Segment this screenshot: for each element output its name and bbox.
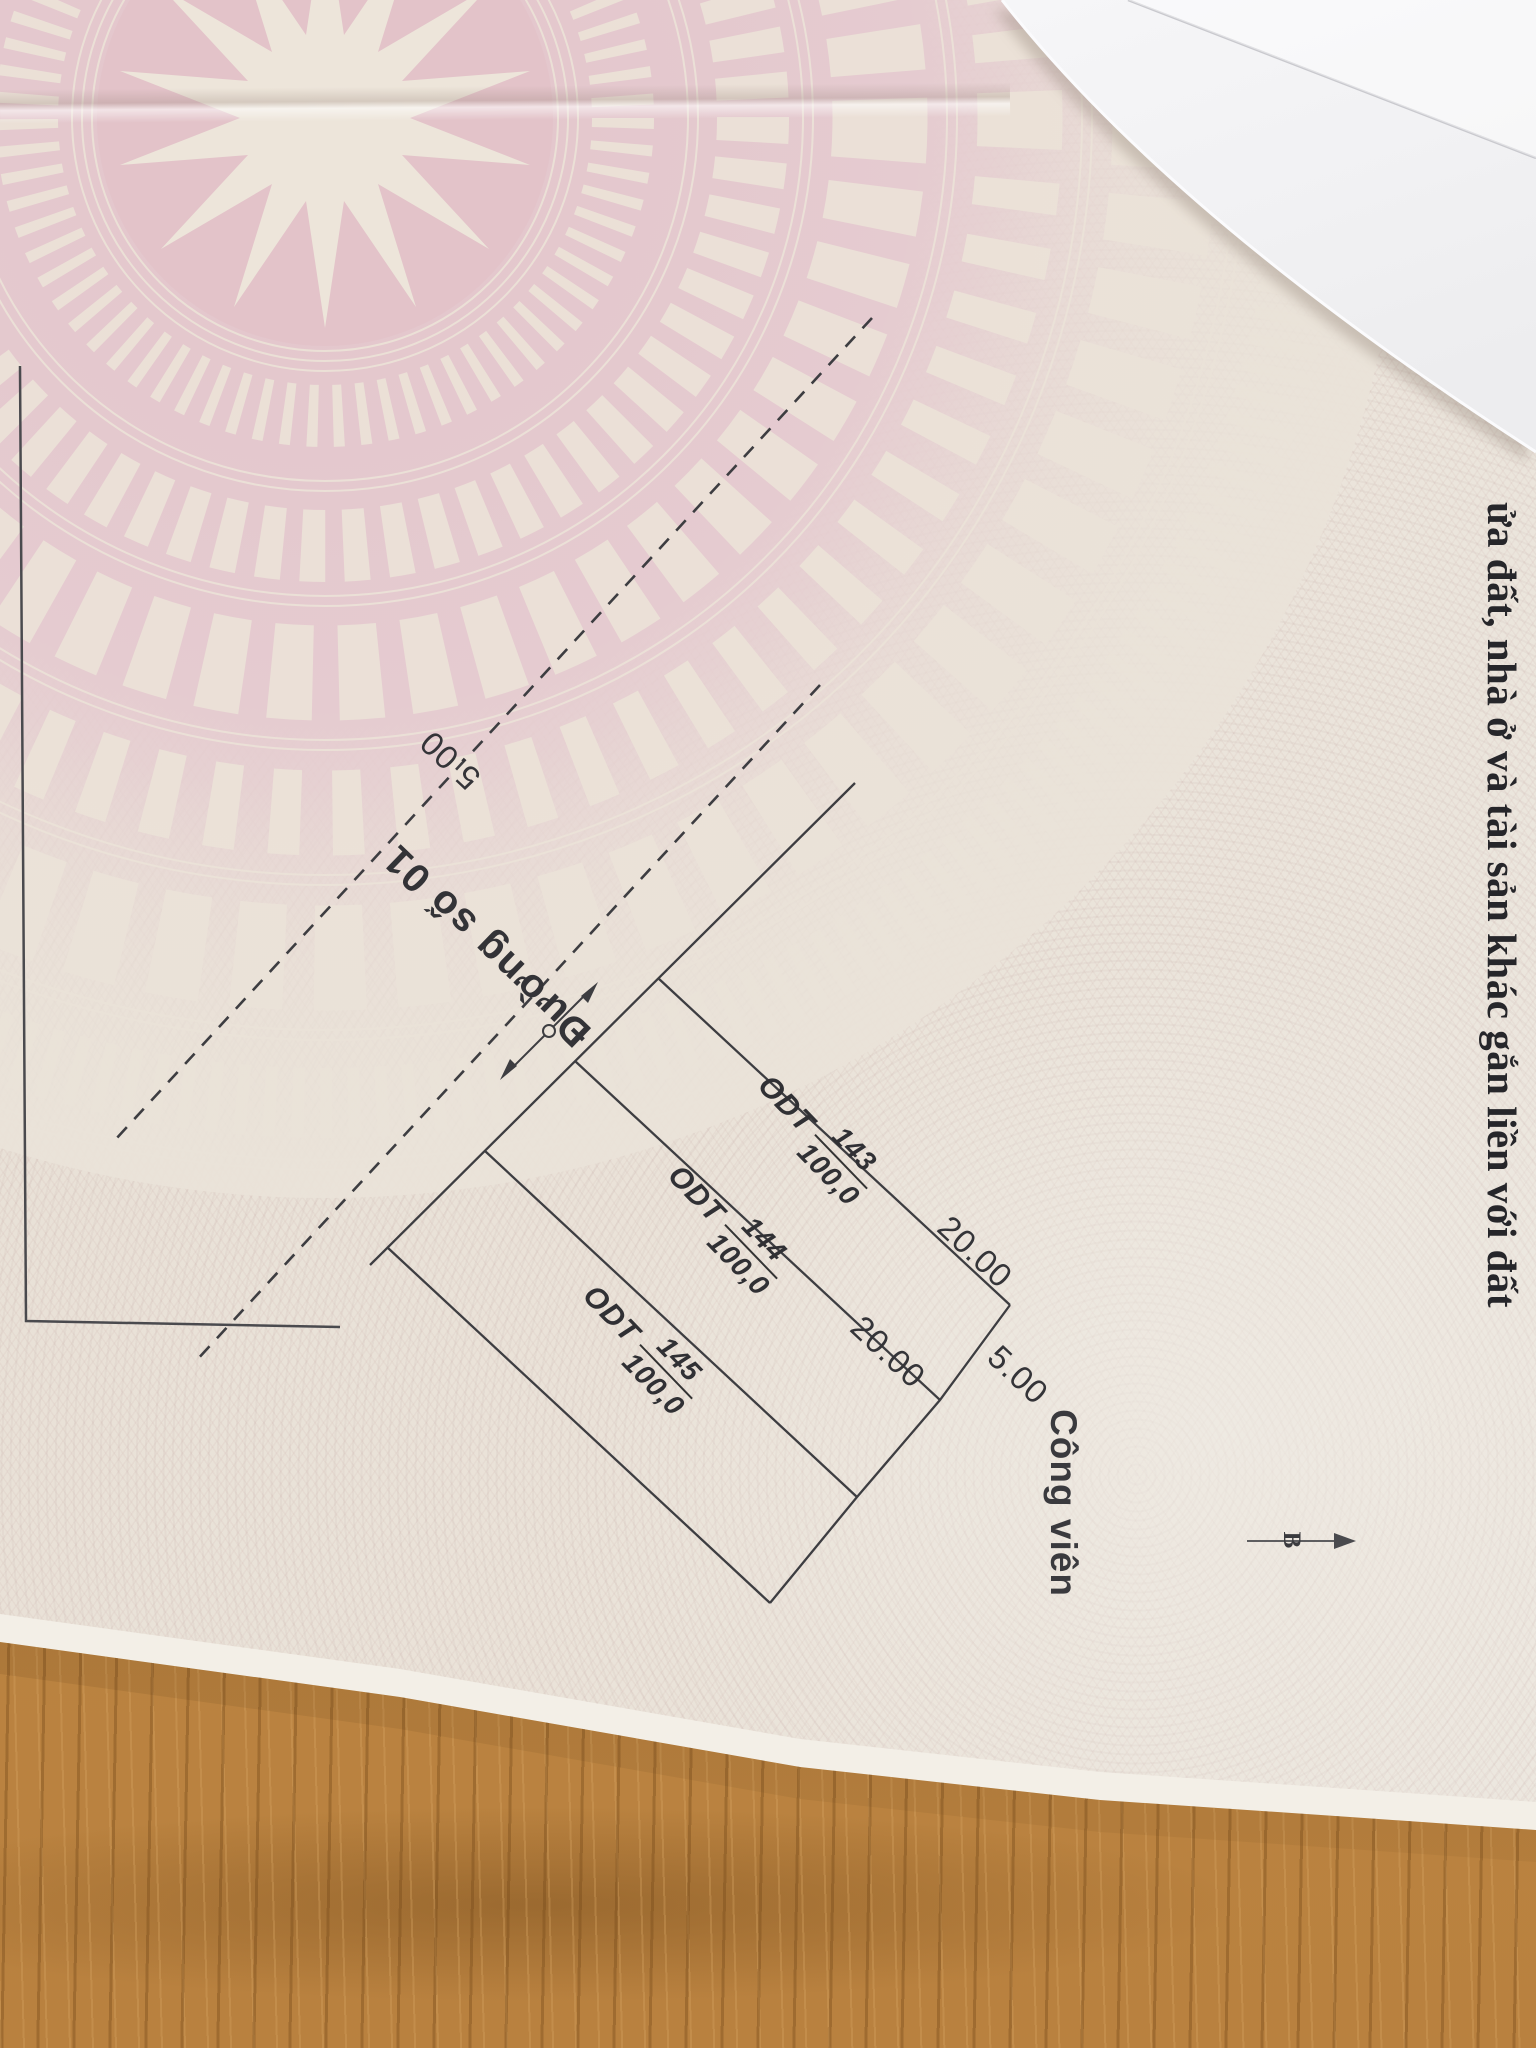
- paper-crease: [0, 82, 1010, 123]
- certificate-edge-text: ửa đất, nhà ở và tài sản khác gắn liền v…: [1478, 502, 1526, 1308]
- north-arrow-label: B: [1277, 1532, 1305, 1549]
- north-arrow-head-icon: [1334, 1533, 1356, 1549]
- park-label: Công viên: [1042, 1409, 1084, 1597]
- photo-of-land-certificate: ửa đất, nhà ở và tài sản khác gắn liền v…: [0, 0, 1536, 2048]
